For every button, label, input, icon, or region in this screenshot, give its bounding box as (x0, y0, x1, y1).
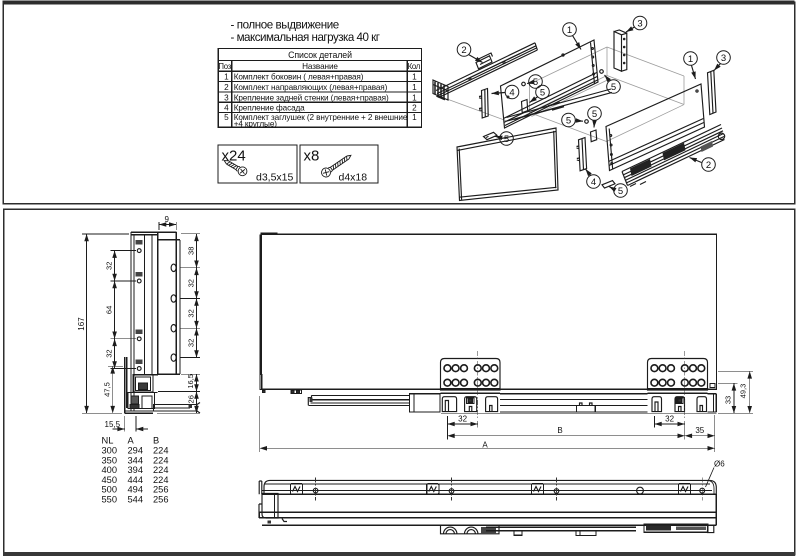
svg-text:544: 544 (128, 495, 144, 505)
svg-text:3: 3 (224, 93, 229, 102)
svg-text:15,5: 15,5 (105, 420, 121, 429)
svg-text:+4 круглые): +4 круглые) (234, 120, 278, 129)
svg-text:2: 2 (224, 83, 229, 92)
svg-text:256: 256 (153, 485, 169, 495)
svg-text:4: 4 (224, 104, 229, 113)
svg-text:26: 26 (186, 395, 195, 403)
svg-text:B: B (153, 436, 159, 446)
svg-text:Поз: Поз (218, 62, 231, 71)
svg-text:394: 394 (128, 465, 144, 475)
svg-text:- максимальная нагрузка 40 кг: - максимальная нагрузка 40 кг (231, 31, 380, 44)
svg-text:A: A (482, 441, 488, 450)
svg-text:224: 224 (153, 465, 169, 475)
svg-text:33: 33 (724, 396, 733, 404)
svg-text:Крепление фасада: Крепление фасада (234, 104, 305, 113)
svg-text:Список деталей: Список деталей (288, 50, 352, 60)
svg-text:224: 224 (153, 455, 169, 465)
svg-text:5: 5 (611, 82, 616, 93)
svg-text:1: 1 (412, 73, 417, 82)
svg-text:1: 1 (567, 25, 572, 36)
svg-text:49,3: 49,3 (739, 384, 748, 399)
svg-text:1: 1 (224, 73, 229, 82)
svg-text:300: 300 (102, 446, 118, 456)
svg-text:35: 35 (695, 426, 704, 435)
svg-text:444: 444 (128, 475, 144, 485)
svg-text:1: 1 (412, 113, 417, 122)
svg-text:2: 2 (461, 45, 466, 56)
svg-text:64: 64 (105, 306, 114, 314)
svg-text:2: 2 (412, 104, 417, 113)
svg-text:Название: Название (302, 62, 338, 71)
svg-text:32: 32 (105, 262, 114, 270)
svg-text:32: 32 (458, 414, 467, 423)
svg-text:Ø6: Ø6 (714, 460, 725, 469)
svg-text:9: 9 (165, 215, 170, 224)
svg-text:5: 5 (566, 115, 571, 126)
svg-text:550: 550 (102, 495, 118, 505)
svg-text:d4x18: d4x18 (339, 172, 368, 184)
svg-text:16,5: 16,5 (186, 374, 195, 389)
svg-text:344: 344 (128, 455, 144, 465)
svg-text:2: 2 (706, 160, 711, 171)
svg-text:4: 4 (509, 87, 514, 98)
svg-text:- полное выдвижение: - полное выдвижение (231, 19, 339, 32)
svg-text:38: 38 (186, 247, 195, 255)
svg-text:32: 32 (186, 279, 195, 287)
svg-text:4: 4 (591, 177, 596, 188)
svg-text:47,5: 47,5 (103, 382, 112, 397)
svg-text:1: 1 (412, 83, 417, 92)
svg-text:5: 5 (540, 87, 545, 98)
svg-text:d3,5x15: d3,5x15 (256, 172, 294, 184)
svg-text:256: 256 (153, 495, 169, 505)
svg-text:B: B (557, 426, 562, 435)
svg-text:32: 32 (665, 414, 674, 423)
svg-text:32: 32 (186, 339, 195, 347)
svg-text:NL: NL (102, 436, 114, 446)
svg-text:494: 494 (128, 485, 144, 495)
svg-text:5: 5 (592, 109, 597, 120)
svg-text:1: 1 (688, 54, 693, 65)
svg-text:224: 224 (153, 475, 169, 485)
svg-text:Кол: Кол (408, 62, 421, 71)
svg-text:5: 5 (533, 77, 538, 88)
svg-text:Комплект направляющих (левая+п: Комплект направляющих (левая+правая) (234, 83, 388, 92)
svg-text:5: 5 (504, 134, 509, 145)
svg-text:224: 224 (153, 446, 169, 456)
svg-text:3: 3 (637, 18, 642, 29)
svg-text:500: 500 (102, 485, 118, 495)
svg-text:32: 32 (105, 349, 114, 357)
svg-text:Крепление задней стенки (левая: Крепление задней стенки (левая+правая) (234, 93, 389, 102)
svg-text:3: 3 (721, 53, 726, 64)
svg-text:1: 1 (412, 93, 417, 102)
svg-text:400: 400 (102, 465, 118, 475)
svg-text:x8: x8 (304, 148, 320, 165)
svg-text:450: 450 (102, 475, 118, 485)
svg-text:350: 350 (102, 455, 118, 465)
svg-text:294: 294 (128, 446, 144, 456)
svg-text:32: 32 (186, 309, 195, 317)
svg-text:5: 5 (618, 186, 623, 197)
svg-text:Комплект боковин ( левая+права: Комплект боковин ( левая+правая) (234, 73, 364, 82)
svg-text:5: 5 (224, 113, 229, 122)
svg-text:A: A (128, 436, 135, 446)
svg-text:167: 167 (77, 317, 86, 331)
